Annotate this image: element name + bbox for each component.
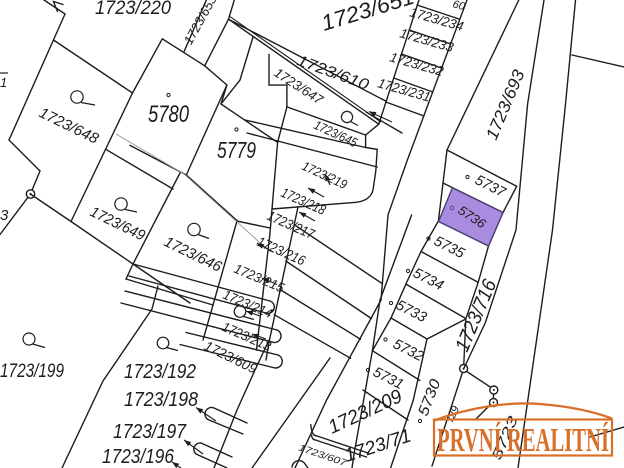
svg-text:1723/192: 1723/192 — [124, 361, 196, 383]
svg-text:60: 60 — [451, 0, 467, 13]
svg-text:5737: 5737 — [472, 172, 509, 201]
svg-text:5735: 5735 — [431, 233, 468, 262]
svg-text:1723/232: 1723/232 — [388, 49, 445, 79]
svg-text:1723/215: 1723/215 — [232, 261, 287, 296]
svg-text:1723/648: 1723/648 — [36, 104, 102, 148]
svg-text:5732: 5732 — [390, 336, 426, 365]
svg-text:1723/219: 1723/219 — [300, 158, 350, 192]
svg-text:3: 3 — [0, 207, 9, 224]
svg-text:1: 1 — [0, 75, 7, 90]
svg-text:1723/645: 1723/645 — [312, 117, 361, 150]
svg-text:1723/199: 1723/199 — [0, 360, 64, 382]
svg-text:1723/216: 1723/216 — [255, 233, 308, 268]
svg-text:1723/196: 1723/196 — [102, 446, 175, 468]
svg-text:1723/198: 1723/198 — [124, 389, 198, 411]
svg-text:1723/197: 1723/197 — [113, 421, 187, 443]
svg-text:PRVNÍ REALITNÍ: PRVNÍ REALITNÍ — [437, 422, 609, 459]
svg-text:1723/693: 1723/693 — [482, 66, 529, 142]
svg-text:5780: 5780 — [148, 101, 190, 128]
svg-text:1723/653: 1723/653 — [181, 0, 221, 47]
svg-text:1723/220: 1723/220 — [95, 0, 171, 19]
svg-text:1723/71: 1723/71 — [342, 426, 414, 467]
svg-text:1723/214: 1723/214 — [221, 287, 275, 321]
svg-text:5779: 5779 — [217, 137, 256, 163]
svg-text:1723/646: 1723/646 — [161, 233, 225, 276]
svg-text:5730: 5730 — [415, 376, 445, 418]
